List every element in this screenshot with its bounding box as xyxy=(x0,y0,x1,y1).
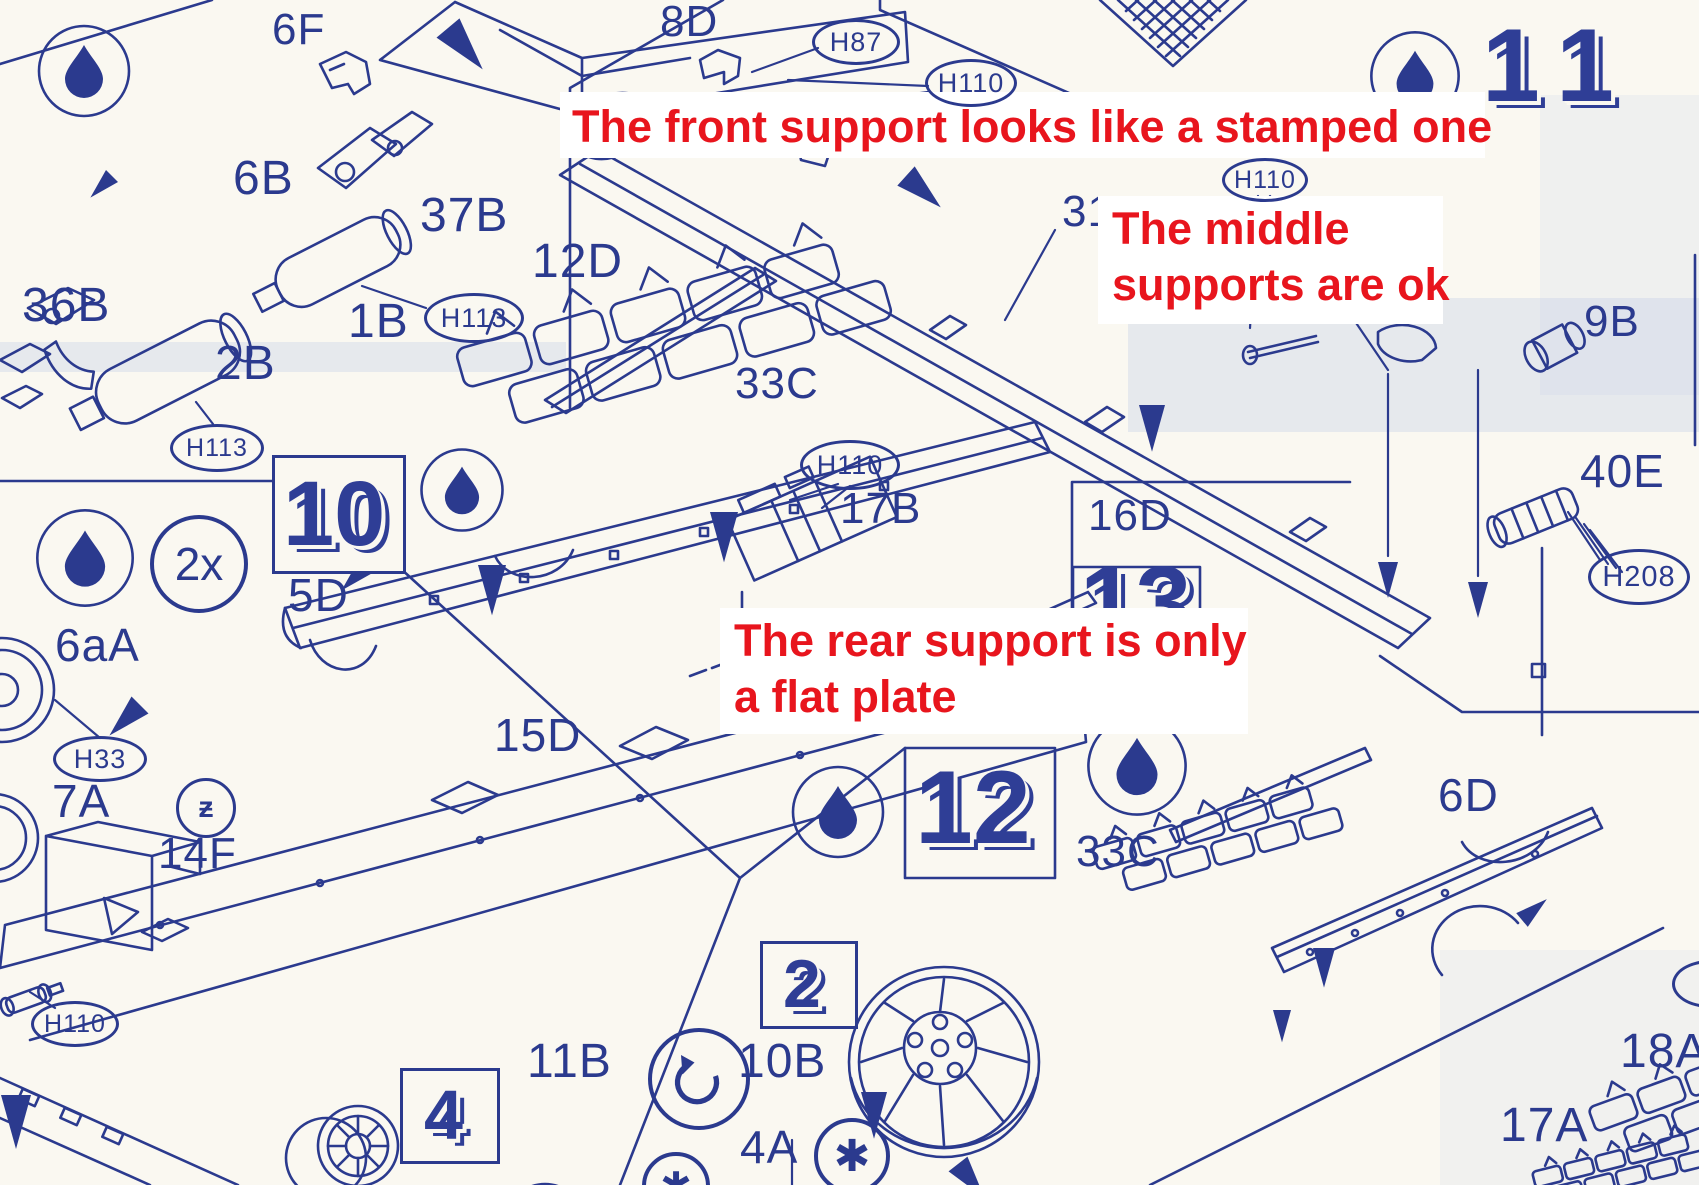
part-label-1b: 1B xyxy=(348,298,409,346)
quantity-2x-label: 2x xyxy=(175,537,224,591)
part-label-7a: 7A xyxy=(52,778,110,824)
part-label-6b: 6B xyxy=(233,155,294,203)
callout-h113-2: H113 xyxy=(170,424,264,472)
part-label-40e: 40E xyxy=(1580,448,1665,494)
middle-support-parts xyxy=(1243,325,1436,364)
step-12: 12 xyxy=(915,756,1031,860)
part-label-14f: 14F xyxy=(158,832,237,876)
wheel-7a xyxy=(0,794,38,882)
wheel-6aa xyxy=(0,638,54,742)
callout-h208: H208 xyxy=(1588,549,1690,605)
clamp-6f xyxy=(320,52,370,94)
part-9b xyxy=(1520,318,1590,375)
note-rear-support-line1: The rear support is only xyxy=(734,614,1247,667)
note-front-support-text: The front support looks like a stamped o… xyxy=(572,100,1492,153)
step-2: 2 xyxy=(783,950,821,1018)
brackets-37b xyxy=(318,112,432,188)
part-label-36b: 36B xyxy=(22,282,110,330)
cut-symbol-glyph: ƶ xyxy=(199,791,214,825)
polycap-glyph: ✱ xyxy=(834,1131,871,1182)
callout-h33: H33 xyxy=(53,736,147,782)
part-label-11b: 11B xyxy=(527,1038,612,1086)
part-40e xyxy=(1484,485,1581,549)
wheel-4 xyxy=(318,1106,398,1185)
note-rear-support: The rear support is only a flat plate xyxy=(720,608,1248,734)
step-11: 11 xyxy=(1482,14,1636,118)
part-label-4a: 4A xyxy=(740,1124,798,1170)
note-middle-supports-line2: supports are ok xyxy=(1112,258,1450,311)
note-rear-support-line2: a flat plate xyxy=(734,670,957,723)
part-label-17b: 17B xyxy=(840,487,921,531)
rotate-icon xyxy=(648,1028,750,1130)
part-label-8d: 8D xyxy=(660,0,718,44)
note-middle-supports-line1: The middle xyxy=(1112,202,1350,255)
callout-h87: H87 xyxy=(812,19,900,65)
part-label-5d: 5D xyxy=(288,572,349,618)
quantity-2x-icon: 2x xyxy=(150,515,248,613)
part-label-12d: 12D xyxy=(532,238,623,286)
part-label-33c-right: 33C xyxy=(1076,830,1160,874)
note-middle-supports: The middle supports are ok xyxy=(1098,196,1443,324)
part-label-6aa: 6aA xyxy=(55,622,140,668)
part-label-17a: 17A xyxy=(1500,1102,1588,1150)
note-front-support: The front support looks like a stamped o… xyxy=(560,92,1485,158)
cut-symbol-icon: ƶ xyxy=(176,778,236,838)
step-10: 10 xyxy=(283,468,385,560)
part-label-16d: 16D xyxy=(1088,494,1172,538)
callout-h110-3: H110 xyxy=(800,440,900,490)
polycap-icon: ✱ xyxy=(814,1118,890,1185)
callout-h110-1: H110 xyxy=(925,59,1017,107)
part-label-37b: 37B xyxy=(420,192,508,240)
instruction-sheet: 6F 8D 6B 37B 12D 1B 36B 2B 33C 31F 9B 16… xyxy=(0,0,1699,1185)
part-label-33c-top: 33C xyxy=(735,362,819,406)
engine-deck-grille xyxy=(1100,0,1246,66)
part-label-2b: 2B xyxy=(215,340,276,388)
step-4: 4 xyxy=(424,1080,463,1150)
callout-h113-1: H113 xyxy=(424,293,524,343)
part-label-9b: 9B xyxy=(1584,300,1640,344)
part-label-10b: 10B xyxy=(738,1038,826,1086)
part-label-6d: 6D xyxy=(1438,772,1499,818)
callout-h110-4: H110 xyxy=(31,1001,119,1047)
front-support-part xyxy=(700,50,740,84)
part-label-18a: 18A xyxy=(1620,1028,1699,1076)
polycap-glyph: ✱ xyxy=(660,1164,692,1185)
part-label-6f: 6F xyxy=(272,8,325,52)
part-label-15d: 15D xyxy=(494,712,581,758)
callout-h110-2: H110 xyxy=(1222,158,1308,202)
